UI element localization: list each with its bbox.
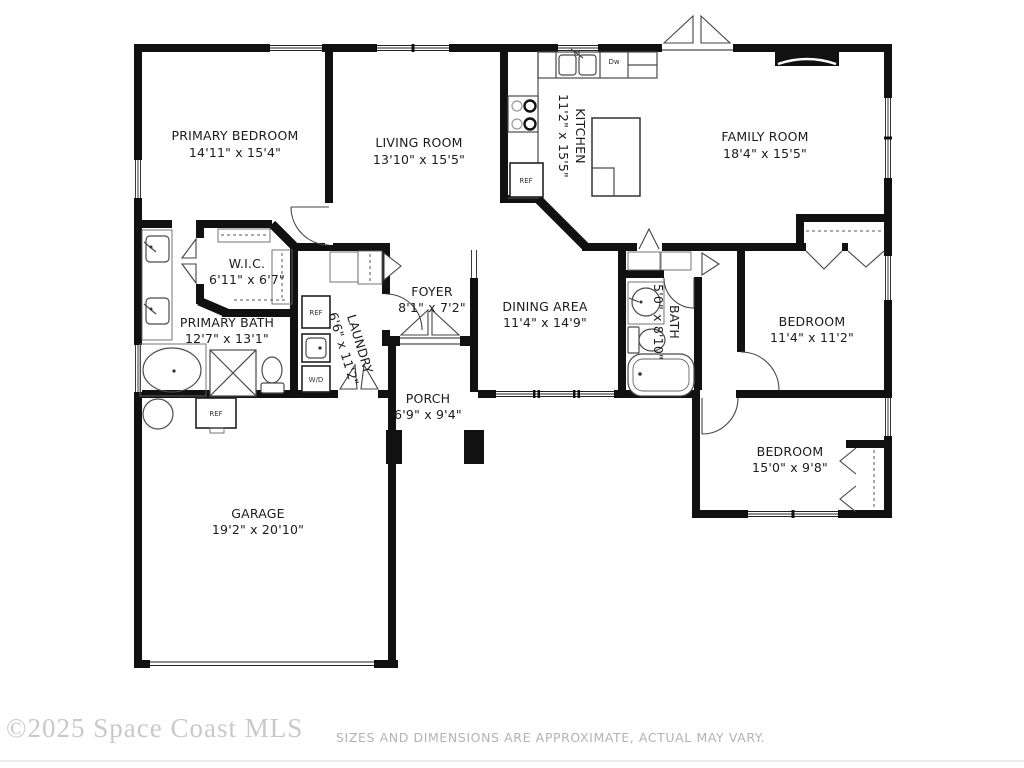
bathtub (140, 344, 206, 396)
laundry-refrigerator: REF (302, 296, 330, 328)
svg-text:Dw: Dw (608, 58, 619, 66)
svg-text:11'4" x 11'2": 11'4" x 11'2" (770, 330, 854, 345)
primary-bedroom-door (291, 207, 329, 245)
svg-text:12'7" x 13'1": 12'7" x 13'1" (185, 331, 269, 346)
window (134, 345, 142, 392)
wic-double-door (182, 239, 196, 283)
svg-text:11'2" x 15'5": 11'2" x 15'5" (556, 94, 571, 178)
room-label-porch: PORCH 6'9" x 9'4" (394, 391, 462, 422)
hall-linen-closets (628, 252, 691, 270)
kitchen-island (592, 118, 640, 196)
washer (302, 334, 330, 362)
porch-pillar (386, 430, 402, 464)
bedroom-2-closet-doors (840, 448, 856, 512)
hall-corridor-door (702, 253, 719, 275)
window (884, 98, 892, 178)
laundry-closet (358, 251, 382, 284)
window (134, 160, 142, 198)
svg-text:BATH: BATH (667, 305, 682, 339)
svg-text:BEDROOM: BEDROOM (779, 314, 846, 329)
bedroom-2-door (702, 398, 738, 434)
window (884, 398, 892, 436)
svg-text:8'1" x 7'2": 8'1" x 7'2" (398, 300, 466, 315)
window (748, 510, 838, 518)
svg-text:BEDROOM: BEDROOM (757, 444, 824, 459)
floor-plan-page: Dw REF REF W/D (0, 0, 1024, 768)
svg-text:14'11" x 15'4": 14'11" x 15'4" (189, 145, 281, 160)
svg-text:6'9" x 9'4": 6'9" x 9'4" (394, 407, 462, 422)
svg-text:REF: REF (309, 309, 322, 317)
room-label-dining-area: DINING AREA 11'4" x 14'9" (502, 299, 587, 330)
room-labels: PRIMARY BEDROOM 14'11" x 15'4" LIVING RO… (172, 94, 855, 537)
primary-bedroom-closet (218, 229, 270, 242)
disclaimer-text: SIZES AND DIMENSIONS ARE APPROXIMATE, AC… (336, 730, 765, 745)
hall-door (639, 229, 659, 249)
kitchen-sink (559, 49, 596, 75)
hall-bath-door (664, 278, 694, 308)
svg-text:LIVING ROOM: LIVING ROOM (375, 135, 462, 150)
svg-text:11'4" x 14'9": 11'4" x 14'9" (503, 315, 587, 330)
svg-text:KITCHEN: KITCHEN (573, 108, 588, 164)
vanity-sink (144, 236, 169, 262)
svg-text:PRIMARY BATH: PRIMARY BATH (180, 315, 274, 330)
svg-text:19'2" x 20'10": 19'2" x 20'10" (212, 522, 304, 537)
window (377, 44, 449, 52)
room-label-foyer: FOYER 8'1" x 7'2" (398, 284, 466, 315)
room-label-garage: GARAGE 19'2" x 20'10" (212, 506, 304, 537)
garage-fixtures: REF (143, 398, 236, 433)
bedroom-1-door (741, 352, 779, 390)
svg-text:FOYER: FOYER (411, 284, 453, 299)
svg-text:PORCH: PORCH (406, 391, 451, 406)
washer-dryer: W/D (302, 366, 330, 392)
room-label-primary-bedroom: PRIMARY BEDROOM 14'11" x 15'4" (172, 128, 299, 160)
window (270, 44, 322, 52)
svg-text:REF: REF (519, 177, 532, 185)
svg-text:W/D: W/D (309, 376, 324, 384)
footer: ©2025 Space Coast MLS SIZES AND DIMENSIO… (0, 713, 1024, 762)
sliding-window (496, 390, 614, 398)
room-label-bedroom-2: BEDROOM 15'0" x 9'8" (752, 444, 828, 475)
cased-opening (470, 250, 478, 278)
room-label-wic: W.I.C. 6'11" x 6'7" (209, 256, 285, 287)
svg-text:PRIMARY BEDROOM: PRIMARY BEDROOM (172, 128, 299, 143)
garage-refrigerator: REF (196, 398, 236, 433)
shower (210, 350, 256, 396)
bedroom-1-closet-doors (806, 251, 884, 269)
room-label-kitchen: KITCHEN 11'2" x 15'5" (556, 94, 588, 178)
porch-pillars (386, 430, 484, 464)
exterior-double-door (664, 16, 730, 43)
refrigerator: REF (510, 163, 543, 197)
svg-text:FAMILY ROOM: FAMILY ROOM (721, 129, 808, 144)
garage-door (150, 660, 374, 668)
toilet (261, 357, 284, 393)
fireplace (775, 44, 839, 66)
dishwasher: Dw (608, 58, 619, 66)
water-heater (143, 399, 173, 429)
floor-plan: Dw REF REF W/D (0, 0, 1024, 768)
svg-text:6'11" x 6'7": 6'11" x 6'7" (209, 272, 285, 287)
stove (508, 96, 538, 132)
porch-pillar (464, 430, 484, 464)
laundry-closet-door (384, 253, 401, 280)
room-label-family-room: FAMILY ROOM 18'4" x 15'5" (721, 129, 808, 161)
bathtub (628, 354, 694, 396)
svg-text:REF: REF (209, 410, 222, 418)
watermark-text: ©2025 Space Coast MLS (6, 713, 303, 743)
doors (182, 16, 884, 512)
svg-text:5'0" x 8'10": 5'0" x 8'10" (651, 284, 666, 360)
svg-text:15'0" x 9'8": 15'0" x 9'8" (752, 460, 828, 475)
vanity-sink (144, 298, 169, 324)
svg-text:13'10" x 15'5": 13'10" x 15'5" (373, 152, 465, 167)
svg-text:DINING AREA: DINING AREA (502, 299, 587, 314)
room-label-bath: BATH 5'0" x 8'10" (651, 284, 682, 360)
svg-text:18'4" x 15'5": 18'4" x 15'5" (723, 146, 807, 161)
window (884, 256, 892, 300)
svg-text:GARAGE: GARAGE (231, 506, 285, 521)
room-label-primary-bath: PRIMARY BATH 12'7" x 13'1" (180, 315, 274, 346)
page-edge-line (0, 760, 1024, 762)
room-label-bedroom-1: BEDROOM 11'4" x 11'2" (770, 314, 854, 345)
room-label-living-room: LIVING ROOM 13'10" x 15'5" (373, 135, 465, 167)
laundry-cabinet (330, 252, 358, 282)
svg-text:W.I.C.: W.I.C. (229, 256, 265, 271)
